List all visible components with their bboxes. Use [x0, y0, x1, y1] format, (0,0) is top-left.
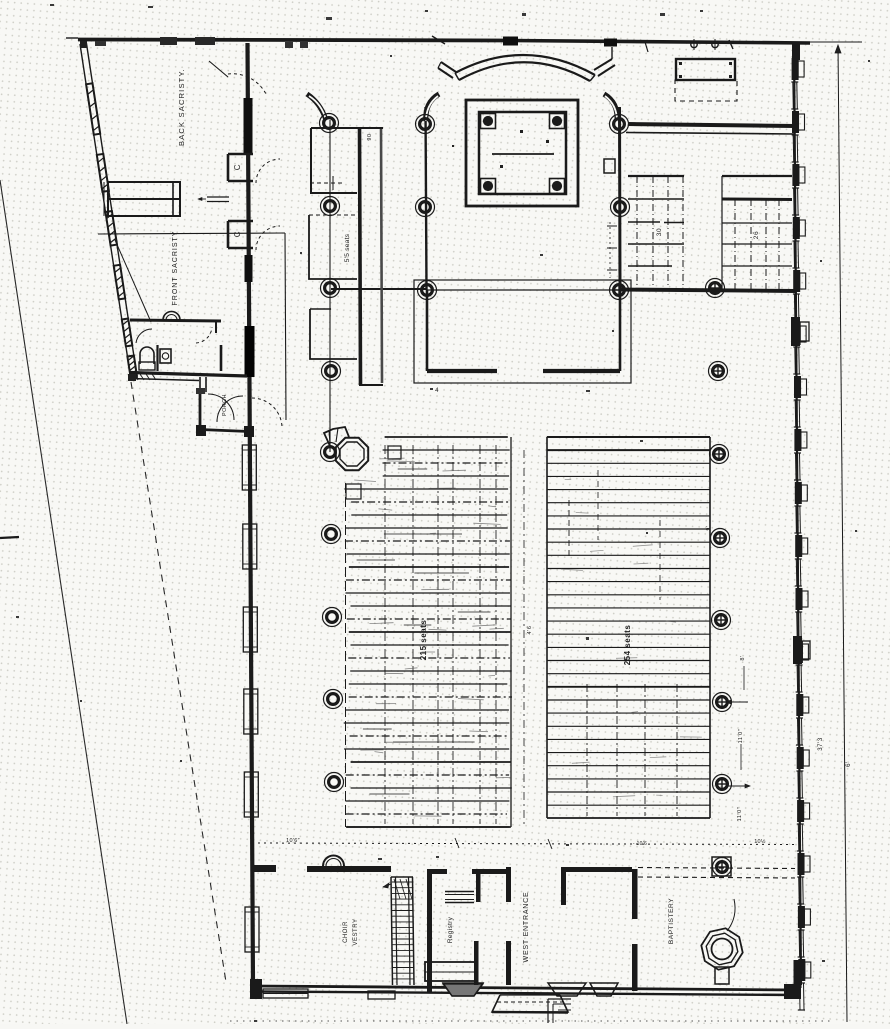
- svg-text:9': 9': [706, 526, 712, 531]
- svg-text:90: 90: [367, 133, 373, 140]
- svg-text:6': 6': [846, 761, 852, 767]
- svg-text:VESTRY: VESTRY: [353, 919, 359, 946]
- svg-text:BAPTISTERY: BAPTISTERY: [668, 898, 675, 944]
- svg-text:10'6″: 10'6″: [286, 838, 300, 844]
- svg-text:CHOIR: CHOIR: [343, 921, 349, 943]
- svg-text:26: 26: [753, 231, 760, 239]
- svg-text:11'0″: 11'0″: [737, 807, 743, 822]
- svg-text:Registry: Registry: [447, 916, 454, 943]
- svg-text:4'6: 4'6: [527, 626, 533, 635]
- svg-text:11'0″: 11'0″: [738, 729, 744, 744]
- svg-text:C: C: [233, 164, 242, 170]
- svg-text:8': 8': [740, 655, 746, 660]
- svg-text:- 10'6: - 10'6: [633, 841, 647, 847]
- svg-text:BACK SACRISTY.: BACK SACRISTY.: [177, 68, 186, 146]
- svg-text:37'3: 37'3: [818, 737, 824, 751]
- svg-text:215 seats: 215 seats: [419, 620, 428, 661]
- svg-text:C: C: [233, 231, 242, 237]
- svg-text:254 seats: 254 seats: [623, 625, 632, 666]
- svg-text:10½: 10½: [754, 838, 766, 845]
- svg-text:FRONT SACRISTY: FRONT SACRISTY: [172, 231, 179, 306]
- svg-text:WEST ENTRANCE: WEST ENTRANCE: [523, 892, 530, 963]
- svg-text:4: 4: [435, 388, 439, 394]
- svg-text:30: 30: [656, 228, 663, 236]
- svg-text:5'5 seats: 5'5 seats: [344, 233, 351, 262]
